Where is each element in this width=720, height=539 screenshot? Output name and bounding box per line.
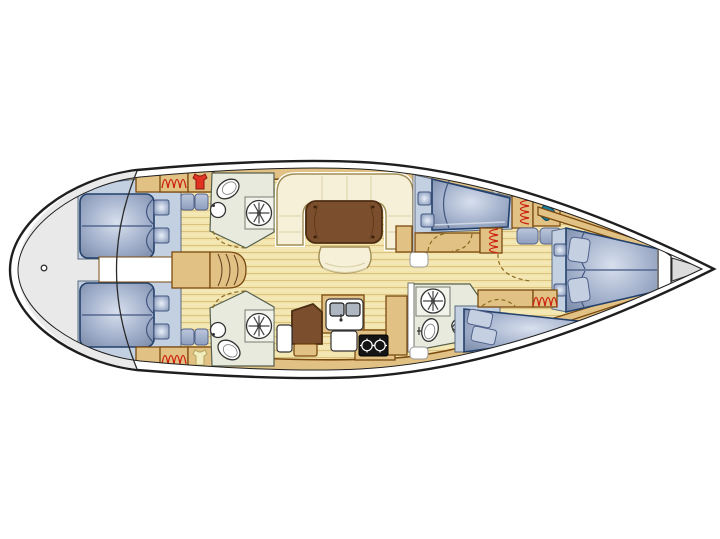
stern-fitting [41, 265, 47, 271]
shower-icon [247, 201, 272, 226]
shower-icon [421, 289, 445, 313]
yacht-floor-plan [0, 0, 720, 539]
seat-cushion [195, 194, 208, 210]
hull-window [154, 324, 169, 339]
salon-cabinet [396, 226, 412, 252]
chart-table [292, 304, 322, 344]
seat-cushion [517, 228, 538, 244]
interior [78, 158, 718, 382]
galley-oven [331, 331, 357, 351]
head-bulkhead [408, 283, 414, 352]
hull-window [154, 296, 169, 311]
hull-window [154, 228, 169, 243]
seat-cushion [181, 194, 194, 210]
seat-cushion [181, 329, 194, 345]
deck-hatch [410, 347, 428, 359]
cockpit-well [99, 257, 172, 282]
hull-window [418, 192, 431, 205]
companionway [172, 252, 246, 288]
sink-basin [346, 303, 360, 316]
pillow [567, 277, 590, 304]
hull-window [554, 244, 566, 256]
engine-box [172, 252, 210, 288]
sink-basin [330, 303, 344, 316]
hull-window [154, 200, 169, 215]
mid-stbd-shelf [478, 290, 533, 307]
nav-seat [294, 344, 317, 356]
hull-window [421, 214, 434, 227]
yacht-layout-page [0, 0, 720, 539]
galley-counter [386, 296, 407, 355]
pillow [567, 237, 590, 264]
fridge [277, 325, 292, 352]
seat-cushion [195, 329, 208, 345]
locker-hatch [410, 252, 428, 267]
shower-icon [247, 314, 272, 339]
mid-port-shelf [415, 233, 480, 252]
